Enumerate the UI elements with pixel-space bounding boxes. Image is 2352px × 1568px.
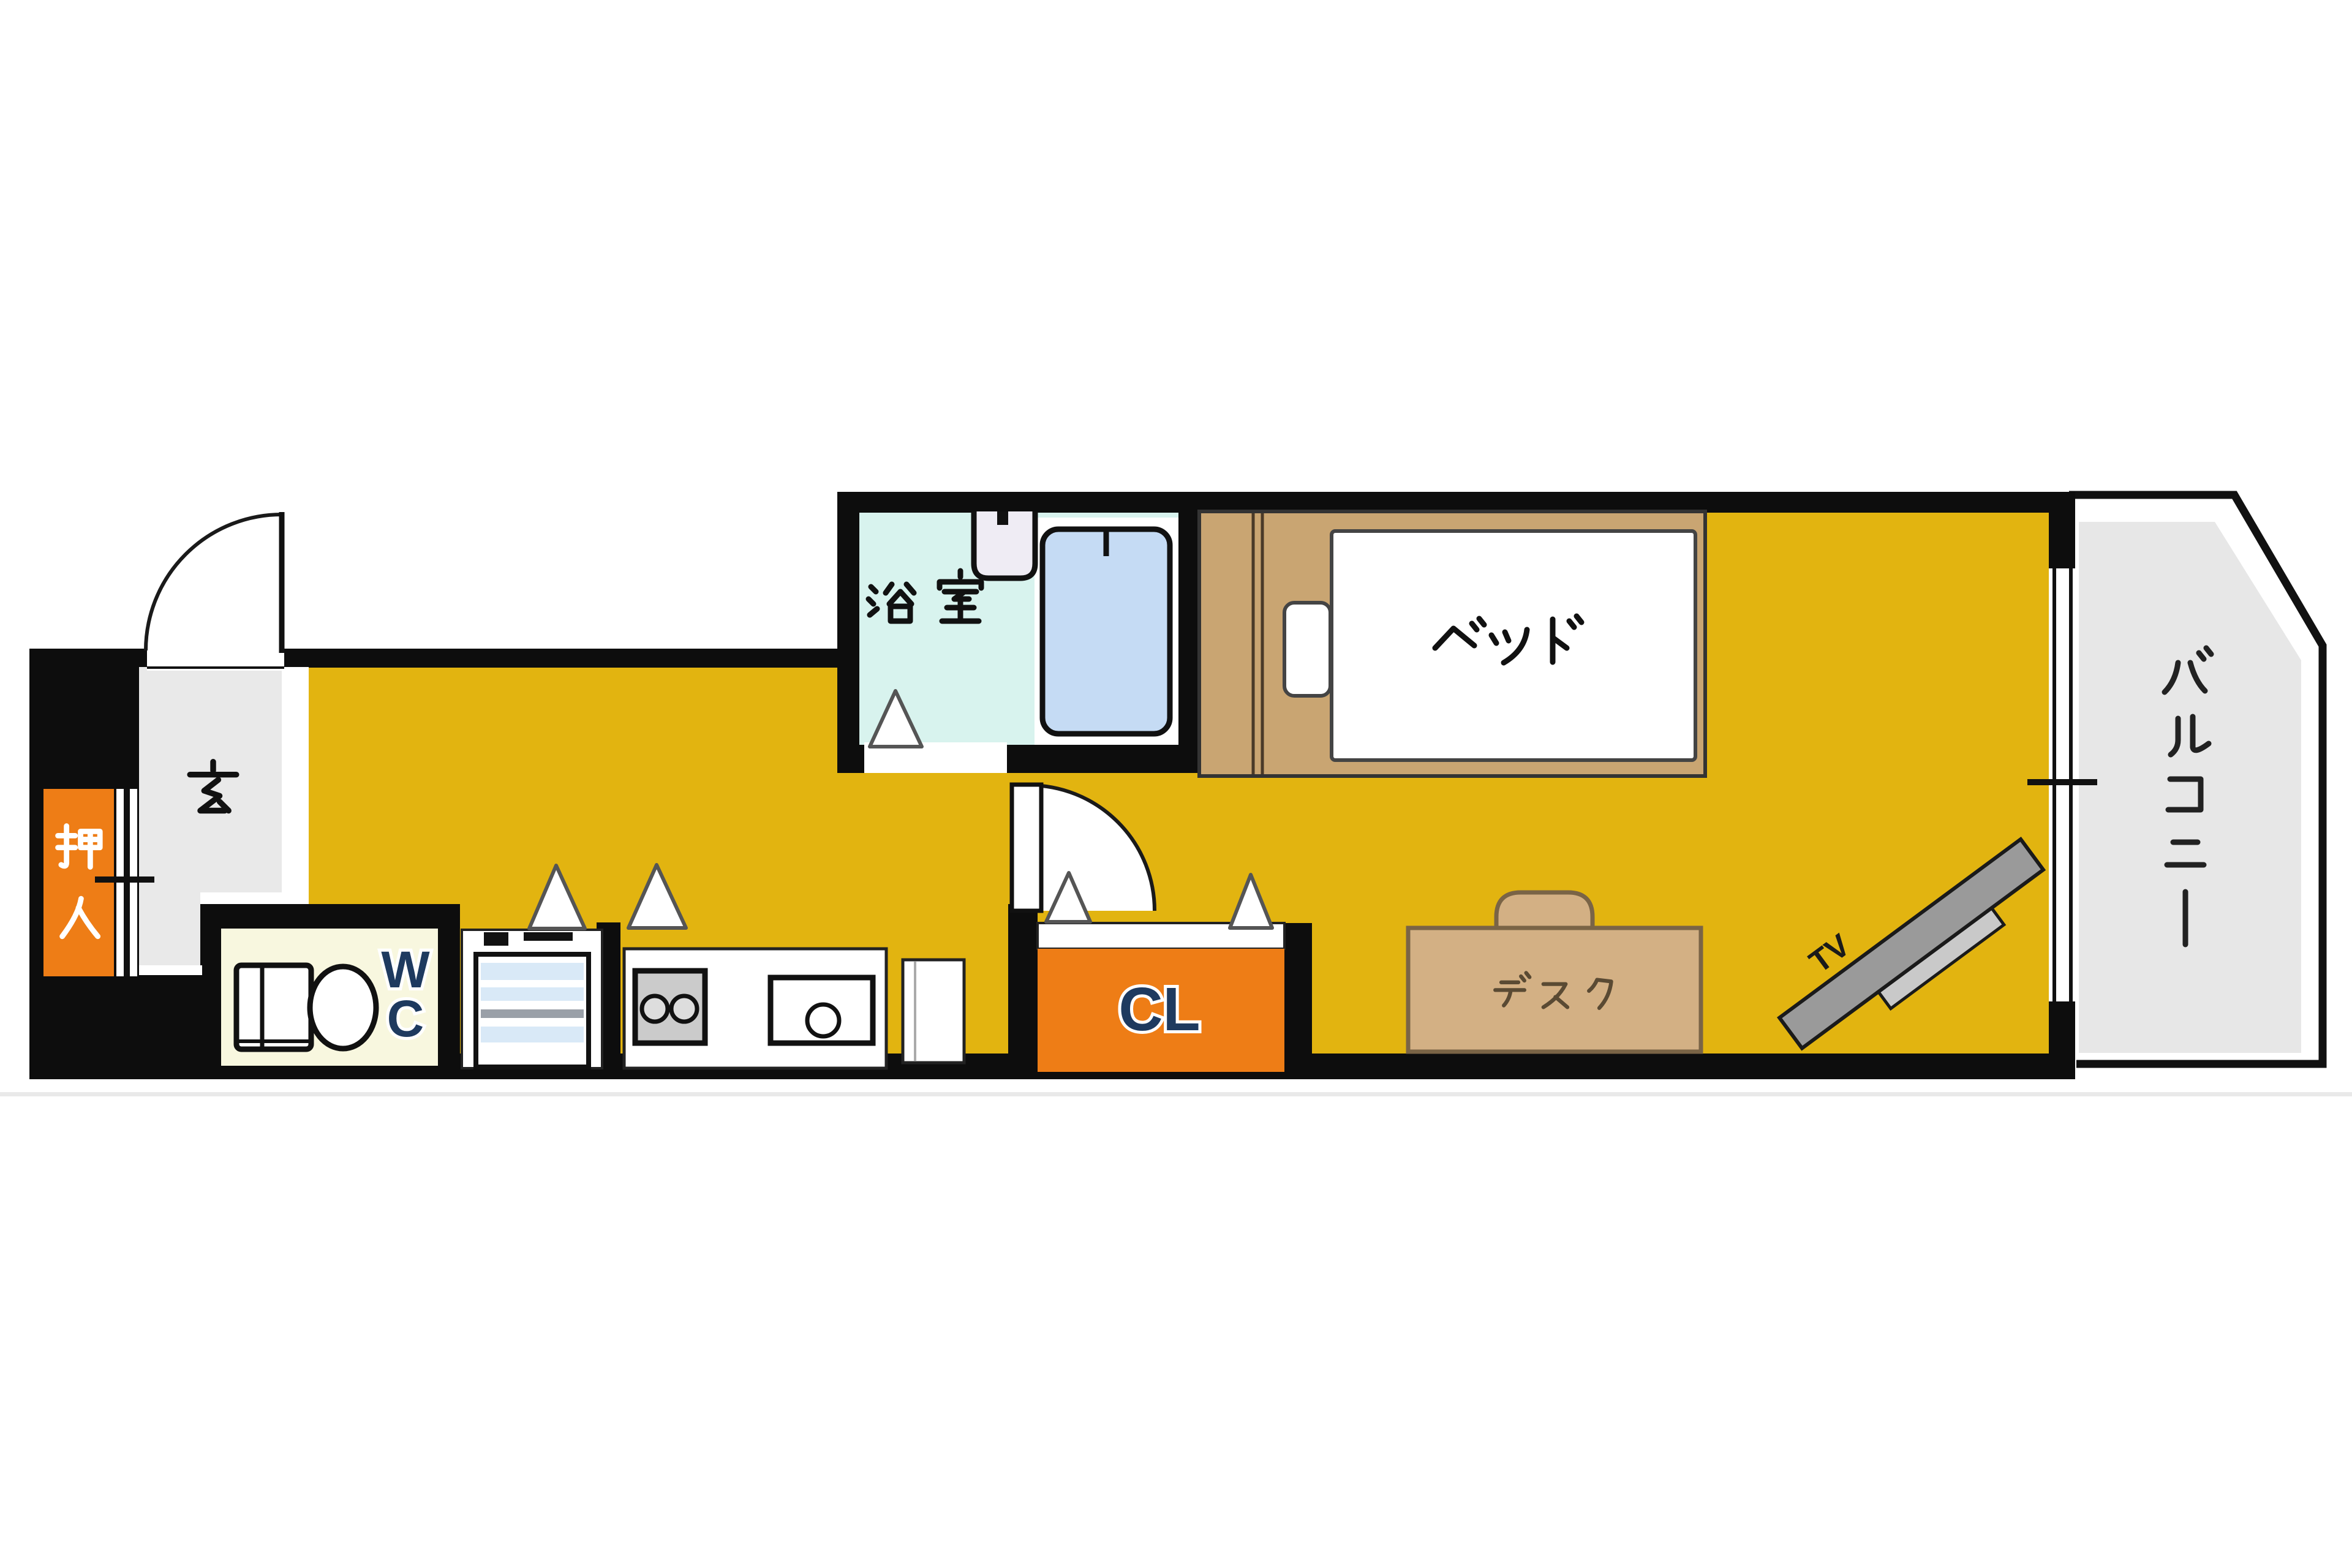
svg-text:CL: CL: [1118, 975, 1200, 1044]
svg-text:C: C: [387, 990, 424, 1047]
